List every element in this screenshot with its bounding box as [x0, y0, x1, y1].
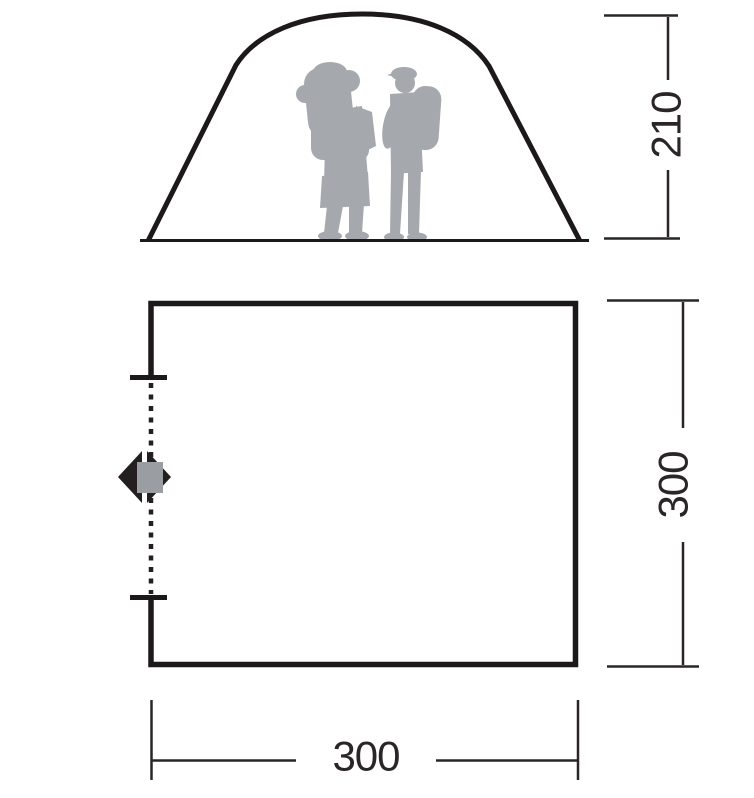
hiker-right-silhouette: [379, 67, 442, 242]
height-dimension-label: 210: [643, 91, 690, 158]
hikers-silhouette: [296, 62, 442, 242]
height-dimension: 210: [604, 16, 690, 239]
tent-dimensions-diagram: 210 300: [0, 0, 754, 798]
width-dimension-label: 300: [332, 733, 399, 780]
floor-plan-walls: [151, 304, 576, 665]
door-direction-arrow-icon: [118, 451, 171, 503]
floor-plan-view: 300 300: [118, 301, 699, 781]
elevation-view: 210: [140, 14, 690, 242]
depth-dimension: 300: [607, 301, 699, 667]
hiker-left-silhouette: [296, 62, 376, 241]
door-opening: [118, 378, 171, 598]
diagram-svg: 210 300: [0, 0, 754, 798]
width-dimension: 300: [152, 700, 579, 780]
depth-dimension-label: 300: [650, 451, 697, 518]
